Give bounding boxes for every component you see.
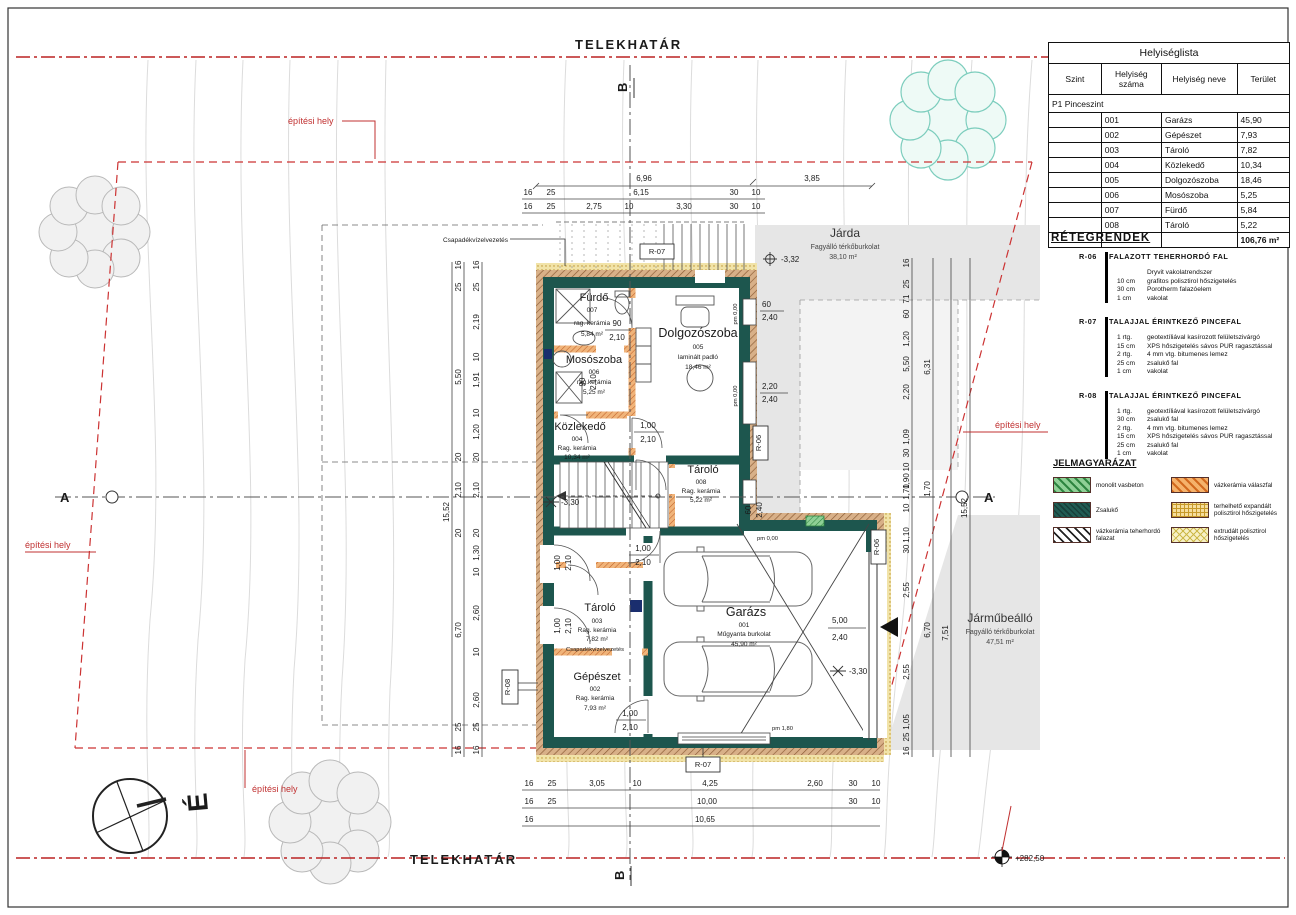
svg-text:003: 003 [592,618,603,625]
north-letter: É [181,792,214,813]
buildup-name: TALAJJAL ÉRINTKEZŐ PINCEFAL [1109,317,1241,326]
svg-text:Fürdő: Fürdő [580,292,609,304]
svg-text:2,10: 2,10 [609,333,625,342]
svg-text:2,40: 2,40 [755,502,764,518]
svg-text:25: 25 [454,722,463,731]
svg-text:20: 20 [454,528,463,537]
svg-text:-3,30: -3,30 [561,498,580,507]
svg-text:2,75: 2,75 [586,202,602,211]
svg-text:001: 001 [739,622,750,629]
svg-text:60: 60 [902,309,911,318]
svg-text:építési hely: építési hely [25,540,71,550]
svg-text:25: 25 [472,722,481,731]
tree-deciduous-left [39,176,150,288]
svg-text:16: 16 [454,745,463,754]
svg-text:Csapadékvízelvezetés: Csapadékvízelvezetés [566,647,624,653]
svg-text:5,00: 5,00 [832,616,848,625]
svg-text:7,82 m²: 7,82 m² [586,636,609,643]
svg-text:3,30: 3,30 [676,202,692,211]
col-header-szama: Helyiség száma [1101,64,1161,95]
benchmark-icon [992,806,1012,867]
csapadek-leader [510,239,565,266]
svg-text:16: 16 [902,746,911,755]
svg-text:5,84 m²: 5,84 m² [581,331,604,338]
svg-text:Garázs: Garázs [726,605,766,619]
svg-text:16: 16 [472,260,481,269]
svg-text:építési hely: építési hely [995,420,1041,430]
svg-text:47,51 m²: 47,51 m² [986,639,1014,646]
svg-text:4,25: 4,25 [702,779,718,788]
swatch-vazkeramia-teherhordo [1053,527,1091,543]
legend-item: terhelhető expandált polisztirol hőszige… [1171,502,1289,518]
svg-text:16: 16 [524,188,533,197]
svg-text:16: 16 [524,202,533,211]
svg-text:pm 0,00: pm 0,00 [757,536,778,542]
svg-text:-3,30: -3,30 [849,667,868,676]
svg-text:5,22 m²: 5,22 m² [690,497,713,504]
svg-text:Járműbeálló: Járműbeálló [967,611,1033,625]
shaft-marker [544,349,552,359]
svg-text:1,00: 1,00 [640,421,656,430]
drain-channel [678,733,770,744]
dimension-labels-bottom: 16 25 3,05 10 4,25 2,60 30 10 16 25 10,0… [525,779,881,824]
svg-text:45,90 m²: 45,90 m² [731,641,757,648]
svg-text:30: 30 [730,202,739,211]
svg-text:2,60: 2,60 [472,605,481,621]
svg-text:30: 30 [730,188,739,197]
room-list-title: Helyiséglista [1049,43,1290,64]
section-marker-icon [106,491,118,503]
svg-text:25: 25 [454,282,463,291]
svg-text:15,52: 15,52 [442,501,451,522]
svg-text:R-06: R-06 [872,539,881,555]
svg-text:2,10: 2,10 [640,435,656,444]
svg-text:rag. kerámia: rag. kerámia [574,320,611,327]
table-row: 005Dolgozószoba18,46 [1049,173,1290,188]
svg-text:20: 20 [472,528,481,537]
buildup-name: FALAZOTT TEHERHORDÓ FAL [1109,252,1228,261]
telekhatar-label-bottom: TELEKHATÁR [410,852,517,867]
svg-text:1,20: 1,20 [472,424,481,440]
buildup-r07: R-07 TALAJJAL ÉRINTKEZŐ PINCEFAL 1 rtg.g… [1079,317,1289,377]
csapadek-note: Csapadékvízelvezetés [443,237,509,244]
section-a-label-right: A [984,490,994,505]
svg-text:6,70: 6,70 [454,622,463,638]
svg-text:6,15: 6,15 [633,188,649,197]
svg-text:10: 10 [902,462,911,471]
svg-text:Műgyanta burkolat: Műgyanta burkolat [717,631,771,638]
table-row: 007Fürdő5,84 [1049,203,1290,218]
benchmark-label: +282,50 [1015,854,1045,863]
layer-buildups-title: RÉTEGRENDEK [1051,232,1289,244]
svg-text:1,00: 1,00 [553,618,562,634]
buildup-r08: R-08 TALAJJAL ÉRINTKEZŐ PINCEFAL 1 rtg.g… [1079,391,1289,459]
svg-text:16: 16 [472,745,481,754]
svg-text:3,05: 3,05 [589,779,605,788]
svg-text:71: 71 [902,294,911,303]
wall-symbol-bar [1105,252,1108,303]
svg-text:25: 25 [548,797,557,806]
svg-text:25: 25 [548,779,557,788]
table-row: 003Tároló7,82 [1049,143,1290,158]
svg-text:7,93 m²: 7,93 m² [584,705,607,712]
svg-text:7,51: 7,51 [941,625,950,641]
dimension-labels-top: 6,96 3,85 16 25 6,15 30 10 16 25 2,75 10… [524,174,821,211]
svg-text:20: 20 [472,452,481,461]
svg-text:1,20: 1,20 [902,331,911,347]
legend-title: JELMAGYARÁZAT [1053,458,1291,469]
svg-text:2,19: 2,19 [472,314,481,330]
xps-band-top [536,263,757,270]
svg-text:6,70: 6,70 [923,622,932,638]
tree-deciduous-bottom [269,760,391,884]
svg-text:16: 16 [454,260,463,269]
table-row: 001Garázs45,90 [1049,113,1290,128]
svg-text:2,20: 2,20 [762,382,778,391]
svg-text:16: 16 [902,258,911,267]
svg-text:005: 005 [693,344,704,351]
svg-text:10: 10 [872,779,881,788]
svg-text:R-07: R-07 [695,760,711,769]
svg-text:Mosószoba: Mosószoba [566,354,623,366]
svg-text:2,60: 2,60 [807,779,823,788]
layer-buildups-panel: RÉTEGRENDEK R-06 FALAZOTT TEHERHORDÓ FAL… [1051,232,1289,473]
svg-text:6,31: 6,31 [923,359,932,375]
svg-text:2,10: 2,10 [635,558,651,567]
svg-text:Gépészet: Gépészet [573,671,620,683]
svg-text:2,40: 2,40 [762,395,778,404]
svg-text:16: 16 [525,815,534,824]
svg-text:38,10 m²: 38,10 m² [829,254,857,261]
level-group-row: P1 Pinceszint [1049,95,1290,113]
svg-text:2,10: 2,10 [472,482,481,498]
buildup-name: TALAJJAL ÉRINTKEZŐ PINCEFAL [1109,391,1241,400]
legend-item: Zsalukő [1053,502,1171,518]
swatch-monolit-vasbeton [1053,477,1091,493]
svg-text:Járda: Járda [830,226,860,240]
svg-text:30: 30 [849,797,858,806]
swatch-vazkeramia-valaszfal [1171,477,1209,493]
svg-text:2,40: 2,40 [762,313,778,322]
svg-text:1,70: 1,70 [923,481,932,497]
staircase [556,462,668,528]
svg-text:Rag. kerámia: Rag. kerámia [682,488,721,495]
svg-text:5,50: 5,50 [902,356,911,372]
svg-text:R-06: R-06 [754,435,763,451]
svg-text:10,00: 10,00 [697,797,718,806]
svg-text:1,00: 1,00 [622,709,638,718]
svg-text:10: 10 [872,797,881,806]
table-row: 008Tároló5,22 [1049,218,1290,233]
wall-symbol-bar [1105,391,1108,459]
legend-item: vázkerámia teherhordó falazat [1053,527,1171,543]
svg-text:10: 10 [472,567,481,576]
svg-text:1,70: 1,70 [902,484,911,500]
svg-text:2,10: 2,10 [564,618,573,634]
svg-text:60: 60 [762,300,771,309]
svg-text:10: 10 [752,188,761,197]
svg-text:10: 10 [472,647,481,656]
svg-text:2,55: 2,55 [902,664,911,680]
svg-text:2,10: 2,10 [454,482,463,498]
svg-text:Fagyálló térkőburkolat: Fagyálló térkőburkolat [966,629,1035,636]
col-header-szint: Szint [1049,64,1102,95]
svg-text:10,34 m²: 10,34 m² [564,454,590,461]
svg-text:25: 25 [902,279,911,288]
legend-item: monolit vasbeton [1053,477,1171,493]
svg-text:1,00: 1,00 [635,544,651,553]
table-row: 006Mosószoba5,25 [1049,188,1290,203]
svg-text:Rag. kerámia: Rag. kerámia [558,445,597,452]
tree-evergreen-topright [890,60,1006,180]
section-b-label-top: B [615,83,630,92]
site-plan-sheet: A A B B 6,96 3,85 16 25 6,15 30 10 16 25… [0,0,1296,915]
svg-text:R-07: R-07 [649,247,665,256]
svg-text:006: 006 [589,369,600,376]
svg-text:pm 0,00: pm 0,00 [733,386,739,407]
svg-text:30: 30 [849,779,858,788]
svg-text:1,30: 1,30 [472,545,481,561]
svg-text:2,20: 2,20 [902,384,911,400]
svg-text:18,46 m²: 18,46 m² [685,364,711,371]
svg-text:30: 30 [902,544,911,553]
buildup-r06: R-06 FALAZOTT TEHERHORDÓ FAL Dryvit vako… [1079,252,1289,303]
svg-text:-3,32: -3,32 [781,255,800,264]
svg-text:5,25 m²: 5,25 m² [583,389,606,396]
svg-text:1,05: 1,05 [902,714,911,730]
svg-text:10: 10 [625,202,634,211]
swatch-expandalt-polisztirol [1171,502,1209,518]
table-row: 004Közlekedő10,34 [1049,158,1290,173]
swatch-zsaluko [1053,502,1091,518]
wall-symbol-bar [1105,317,1108,377]
svg-text:1,91: 1,91 [472,372,481,388]
svg-text:Közlekedő: Közlekedő [554,421,605,433]
svg-text:10: 10 [902,503,911,512]
svg-text:pm 0,00: pm 0,00 [733,304,739,325]
dimension-labels-left: 15,52 16 25 5,50 20 2,10 20 6,70 25 16 1… [442,260,481,754]
upper-floor-projection [322,225,543,725]
svg-text:004: 004 [572,436,583,443]
svg-text:002: 002 [590,686,601,693]
svg-text:16: 16 [525,779,534,788]
svg-text:1,00: 1,00 [553,555,562,571]
col-header-neve: Helyiség neve [1161,64,1237,95]
svg-text:90: 90 [613,319,622,328]
jarda-paving-light [800,300,958,470]
svg-text:60: 60 [744,505,753,514]
svg-text:1,10: 1,10 [902,527,911,543]
svg-text:15,52: 15,52 [960,497,969,518]
legend-panel: JELMAGYARÁZAT monolit vasbeton vázkerámi… [1053,458,1291,543]
svg-text:3,85: 3,85 [804,174,820,183]
svg-text:008: 008 [696,479,707,486]
svg-text:007: 007 [587,307,598,314]
svg-text:25: 25 [472,282,481,291]
svg-text:10: 10 [472,352,481,361]
svg-text:építési hely: építési hely [252,784,298,794]
concrete-lintel [806,516,824,526]
svg-text:25: 25 [902,732,911,741]
garage-door-opening [863,552,887,738]
svg-text:1,09: 1,09 [902,429,911,445]
svg-text:2,10: 2,10 [622,723,638,732]
svg-text:Fagyálló térkőburkolat: Fagyálló térkőburkolat [811,244,880,251]
legend-item: extrudált polisztirol hőszigetelés [1171,527,1289,543]
svg-text:pm 1,80: pm 1,80 [772,726,793,732]
svg-text:Rag. kerámia: Rag. kerámia [578,627,617,634]
svg-text:6,96: 6,96 [636,174,652,183]
svg-text:20: 20 [454,452,463,461]
svg-text:16: 16 [525,797,534,806]
col-header-terulet: Terület [1237,64,1289,95]
svg-text:laminált padló: laminált padló [678,354,718,361]
svg-text:25: 25 [547,202,556,211]
north-arrow-icon [93,779,167,853]
telekhatar-label-top: TELEKHATÁR [575,37,682,52]
svg-text:10: 10 [752,202,761,211]
svg-text:5,50: 5,50 [454,369,463,385]
svg-text:rag.kerámia: rag.kerámia [577,379,612,386]
section-a-label-left: A [60,490,70,505]
room-list-table: Helyiséglista Szint Helyiség száma Helyi… [1048,42,1290,248]
equipment-marker [630,600,642,612]
svg-text:10: 10 [472,408,481,417]
svg-text:Rag. kerámia: Rag. kerámia [576,695,615,702]
svg-text:2,60: 2,60 [472,692,481,708]
svg-text:10: 10 [633,779,642,788]
svg-text:10,65: 10,65 [695,815,716,824]
svg-text:2,40: 2,40 [832,633,848,642]
section-b-label-bottom: B [612,871,627,880]
svg-text:30: 30 [902,448,911,457]
table-row: 002Gépészet7,93 [1049,128,1290,143]
svg-text:Tároló: Tároló [584,602,615,614]
svg-text:építési hely: építési hely [288,116,334,126]
svg-text:25: 25 [547,188,556,197]
svg-text:2,10: 2,10 [564,555,573,571]
legend-item: vázkerámia válaszfal [1171,477,1289,493]
svg-text:R-08: R-08 [503,679,512,695]
svg-text:2,55: 2,55 [902,582,911,598]
svg-text:Dolgozószoba: Dolgozószoba [658,326,737,340]
svg-text:Tároló: Tároló [687,464,718,476]
swatch-extrudalt-polisztirol [1171,527,1209,543]
